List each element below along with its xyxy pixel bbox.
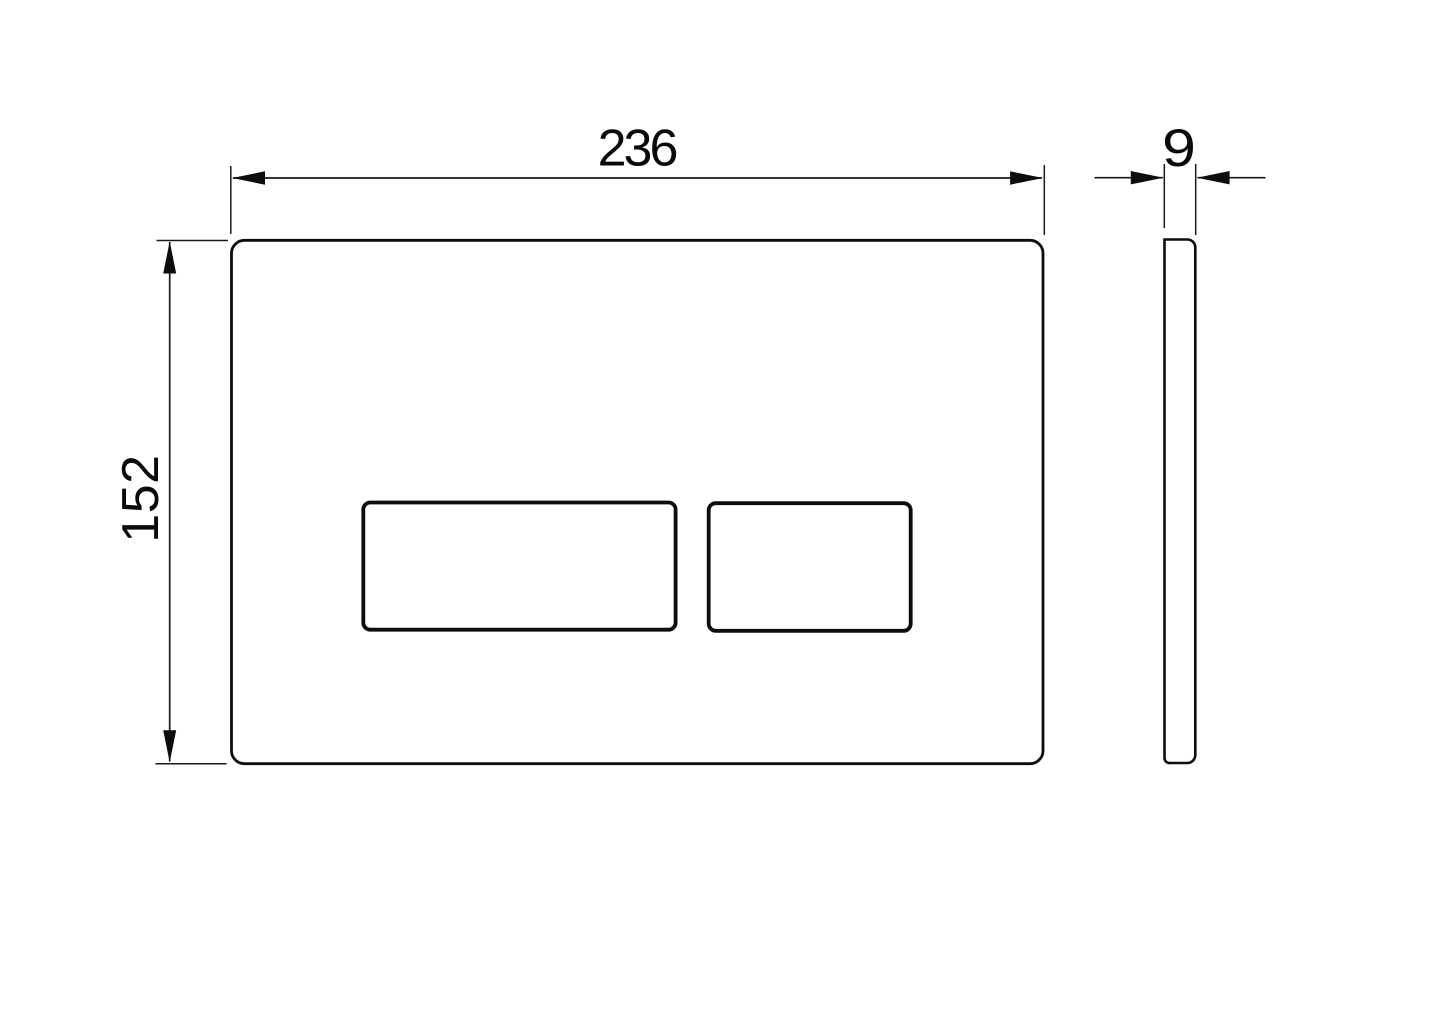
svg-text:236: 236: [598, 120, 677, 178]
svg-text:152: 152: [112, 454, 170, 542]
svg-text:9: 9: [1162, 119, 1196, 178]
